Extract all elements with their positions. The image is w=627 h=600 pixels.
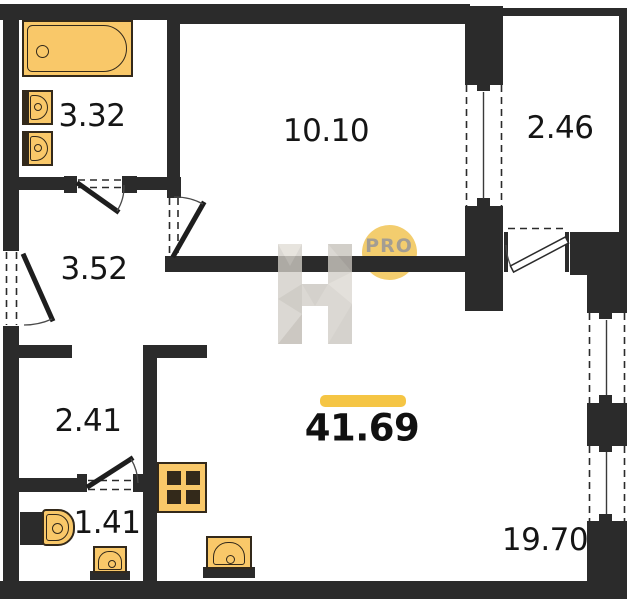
- h-logo-watermark: [278, 244, 352, 344]
- wc-door-leaf: [89, 459, 131, 486]
- room-area-label-storage: 2.41: [54, 403, 121, 439]
- room-area-label-bathroom: 3.32: [58, 98, 125, 134]
- balcony-door-leaf: [510, 237, 568, 272]
- room-area-label-bedroom: 10.10: [283, 113, 369, 149]
- total-area-underline: [320, 395, 406, 407]
- door-swing-arc: [24, 319, 52, 325]
- floor-plan: PRO: [0, 0, 627, 600]
- door-swing-arc: [117, 185, 124, 211]
- door-swing-arc: [131, 459, 138, 483]
- bathroom-door-leaf: [79, 184, 117, 211]
- total-area-label: 41.69: [305, 407, 420, 450]
- room-area-label-wc: 1.41: [73, 505, 140, 541]
- room-area-label-balcony: 2.46: [526, 110, 593, 146]
- entrance-door-leaf: [24, 256, 52, 319]
- room-area-label-hallway: 3.52: [60, 251, 127, 287]
- room-area-label-living: 19.70: [502, 522, 588, 558]
